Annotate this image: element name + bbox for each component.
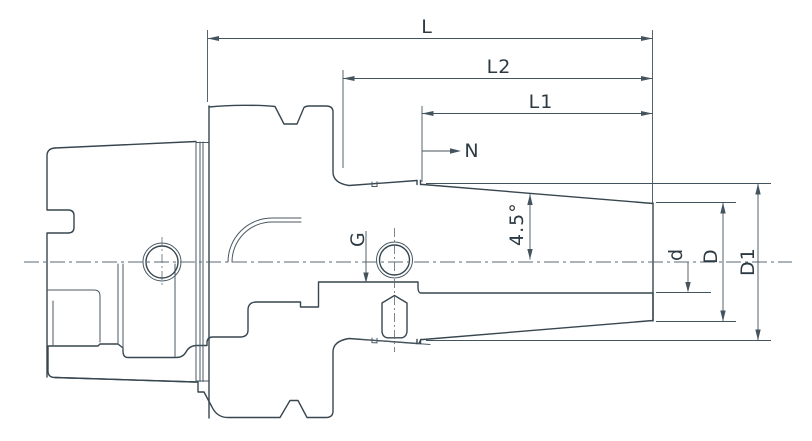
section-hatch-area <box>48 282 653 418</box>
label-d: d <box>665 248 687 261</box>
label-taper-angle: 4.5° <box>506 202 528 246</box>
label-N: N <box>464 140 479 162</box>
label-L: L <box>421 16 433 38</box>
label-G: G <box>347 231 369 247</box>
dimension-labels: L L2 L1 N G 4.5° d D D1 <box>347 16 759 276</box>
label-L1: L1 <box>529 91 554 113</box>
label-D: D <box>700 248 722 264</box>
label-D1: D1 <box>737 247 759 276</box>
technical-drawing: L L2 L1 N G 4.5° d D D1 <box>0 0 812 441</box>
drawing-canvas: L L2 L1 N G 4.5° d D D1 <box>0 0 812 441</box>
bore-detail-lines <box>47 264 175 357</box>
label-L2: L2 <box>487 56 512 78</box>
